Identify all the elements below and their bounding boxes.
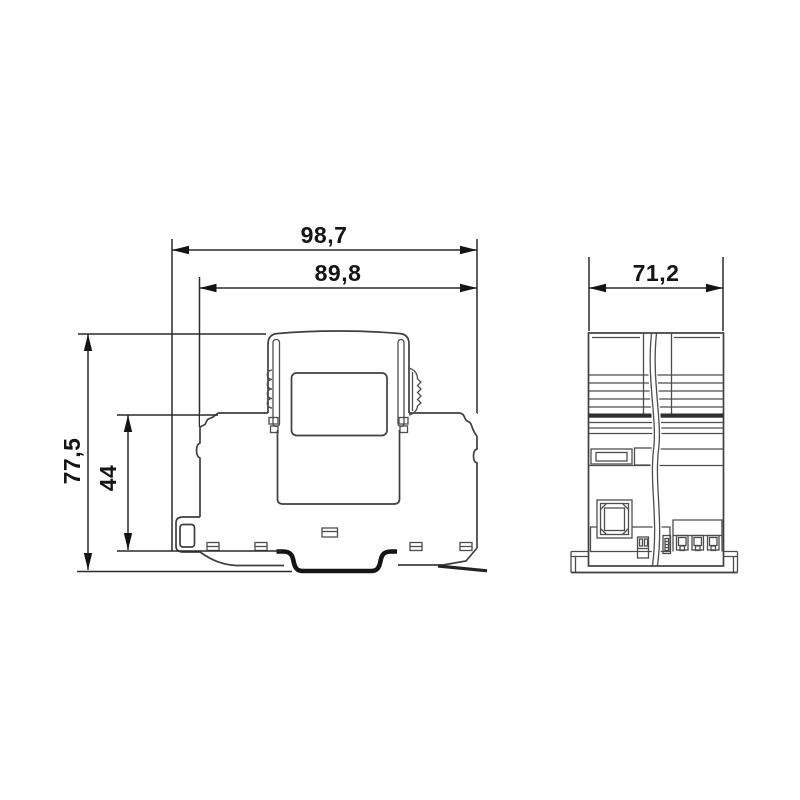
dim-overall-height-label: 77,5 [59,438,85,485]
dim-overall-width: 98,7 [172,222,477,254]
arrowhead-bottom [84,553,92,570]
dim-housing-width: 89,8 [200,260,478,292]
arrowhead-top [84,334,92,351]
dim-base-height: 44 [95,415,132,550]
arrowhead-top [124,415,132,432]
dim-housing-width-label: 89,8 [315,260,362,286]
arrowhead-bottom [124,533,132,550]
arrowhead-right [460,246,477,254]
din-rail-edge-front [438,566,487,571]
release-lever-right [409,368,421,415]
arrowhead-right [706,284,723,292]
dim-overall-height: 77,5 [59,334,92,570]
arrowhead-left [172,246,189,254]
dim-overall-width-label: 98,7 [301,222,348,248]
dim-depth-label: 71,2 [633,260,680,286]
dim-depth: 71,2 [589,260,723,292]
base-left-edge [197,427,201,517]
arrowhead-left [200,284,217,292]
dimension-drawing-canvas: 98,7 89,8 71,2 77,5 44 [0,0,800,800]
dimension-drawing: 98,7 89,8 71,2 77,5 44 [0,0,800,800]
arrowhead-right [460,284,477,292]
dim-base-height-label: 44 [95,465,121,492]
front-view [175,331,487,571]
arrowhead-left [589,284,606,292]
side-view [571,333,738,573]
